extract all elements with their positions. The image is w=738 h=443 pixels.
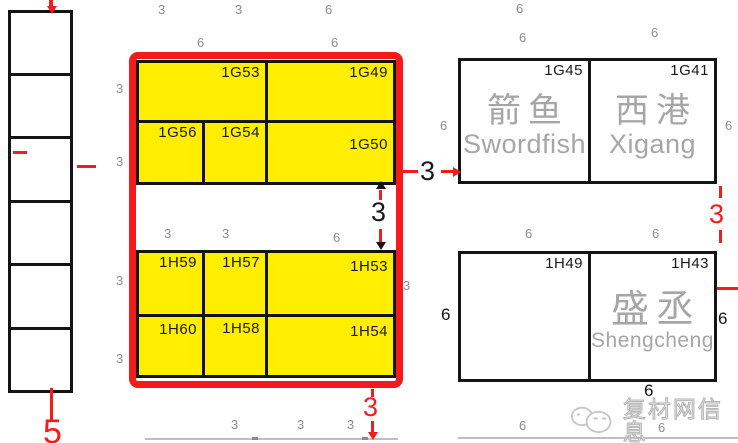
hall-cell	[8, 327, 73, 393]
booth-1G41: 1G41西港Xigang	[588, 58, 717, 184]
dimension-label: 6	[333, 231, 340, 244]
booth-1H59: 1H59	[136, 250, 205, 317]
red-mark	[403, 170, 418, 173]
booth-1H43: 1H43盛丞Shengcheng	[588, 251, 717, 382]
dimension-label: 3	[235, 3, 242, 16]
dimension-label: 6	[197, 36, 204, 49]
dimension-label: 6	[718, 310, 727, 327]
dimension-label: 6	[516, 2, 523, 15]
company-name-en: Swordfish	[463, 130, 586, 158]
dimension-label: 3	[164, 227, 171, 240]
company-name-zh: 西港	[608, 94, 697, 130]
booth-1H49: 1H49	[458, 251, 591, 382]
booth-number: 1H54	[350, 317, 393, 341]
red-mark	[719, 186, 722, 198]
watermark-logo-icon	[570, 405, 618, 437]
dimension-label: 3	[403, 279, 410, 292]
dimension-label: 6	[652, 227, 659, 240]
dimension-label: 6	[725, 119, 732, 132]
watermark-text: 复材网信息	[623, 398, 738, 443]
red-mark	[50, 388, 53, 421]
booth-number: 1H60	[159, 317, 202, 339]
dimension-label: 3	[158, 3, 165, 16]
dimension-label: 6	[519, 31, 526, 44]
booth-number: 1G56	[158, 123, 202, 142]
dimension-label: 6	[651, 26, 658, 39]
booth-number: 1G53	[221, 63, 265, 82]
booth-number: 1H53	[350, 253, 393, 276]
arrowhead	[368, 432, 378, 440]
booth-1H60: 1H60	[136, 314, 205, 378]
red-mark	[13, 151, 27, 154]
booth-1G53: 1G53	[136, 60, 268, 123]
baseline-mark	[252, 437, 258, 440]
dimension-label: 3	[231, 418, 238, 431]
booth-1G50: 1G50	[265, 120, 396, 185]
dimension-label: 3	[363, 394, 378, 421]
booth-number: 1H57	[222, 253, 265, 272]
company-name-zh: 箭鱼	[480, 94, 569, 130]
dimension-label: 6	[519, 419, 526, 432]
dimension-label: 6	[331, 36, 338, 49]
booth-1H58: 1H58	[202, 314, 268, 378]
red-mark	[719, 230, 722, 243]
booth-1H57: 1H57	[202, 250, 268, 317]
booth-1G54: 1G54	[202, 120, 268, 185]
baseline-mark	[145, 438, 398, 440]
dimension-label: 3	[371, 199, 386, 226]
company-name: 箭鱼Swordfish	[461, 61, 588, 181]
booth-number: 1G49	[349, 63, 393, 82]
arrowhead	[453, 167, 461, 177]
dimension-label: 6	[441, 306, 450, 323]
booth-1G45: 1G45箭鱼Swordfish	[458, 58, 591, 184]
dimension-label: 3	[420, 158, 435, 185]
arrowhead	[376, 242, 386, 250]
dimension-label: 3	[116, 352, 123, 365]
booth-number: 1H58	[222, 317, 265, 338]
company-name: 盛丞Shengcheng	[591, 254, 714, 379]
red-mark	[379, 229, 382, 242]
dimension-label: 6	[525, 227, 532, 240]
hall-cell	[8, 263, 73, 330]
exhibition-floor-plan: 1G531G491G561G541G501H591H571H531H601H58…	[0, 0, 738, 443]
booth-1H54: 1H54	[265, 314, 396, 378]
booth-number: 1H49	[545, 254, 588, 273]
watermark: 复材网信息	[570, 398, 738, 443]
red-mark	[371, 389, 374, 397]
dimension-label: 3	[116, 82, 123, 95]
dimension-label: 3	[297, 418, 304, 431]
company-name-zh: 盛丞	[604, 291, 701, 331]
dimension-label: 3	[347, 418, 354, 431]
red-mark	[77, 165, 96, 168]
company-name-en: Xigang	[609, 130, 696, 158]
booth-number: 1G54	[221, 123, 265, 142]
dimension-label: 6	[325, 3, 332, 16]
booth-1G49: 1G49	[265, 60, 396, 123]
red-mark	[379, 190, 382, 200]
arrowhead	[376, 181, 386, 189]
booth-1H53: 1H53	[265, 250, 396, 317]
booth-1G56: 1G56	[136, 120, 205, 185]
company-name: 西港Xigang	[591, 61, 714, 181]
dimension-label: 3	[222, 227, 229, 240]
dimension-label: 3	[116, 155, 123, 168]
dimension-label: 3	[709, 201, 724, 228]
dimension-label: 6	[440, 119, 447, 132]
booth-number: 1H59	[159, 253, 202, 272]
dimension-label: 3	[116, 274, 123, 287]
hall-cell	[8, 200, 73, 266]
hall-cell	[8, 10, 73, 76]
red-mark	[717, 287, 738, 290]
hall-cell	[8, 136, 73, 203]
arrowhead	[47, 6, 57, 14]
company-name-en: Shengcheng	[591, 330, 714, 352]
booth-number: 1G50	[349, 123, 393, 154]
hall-cell	[8, 73, 73, 139]
